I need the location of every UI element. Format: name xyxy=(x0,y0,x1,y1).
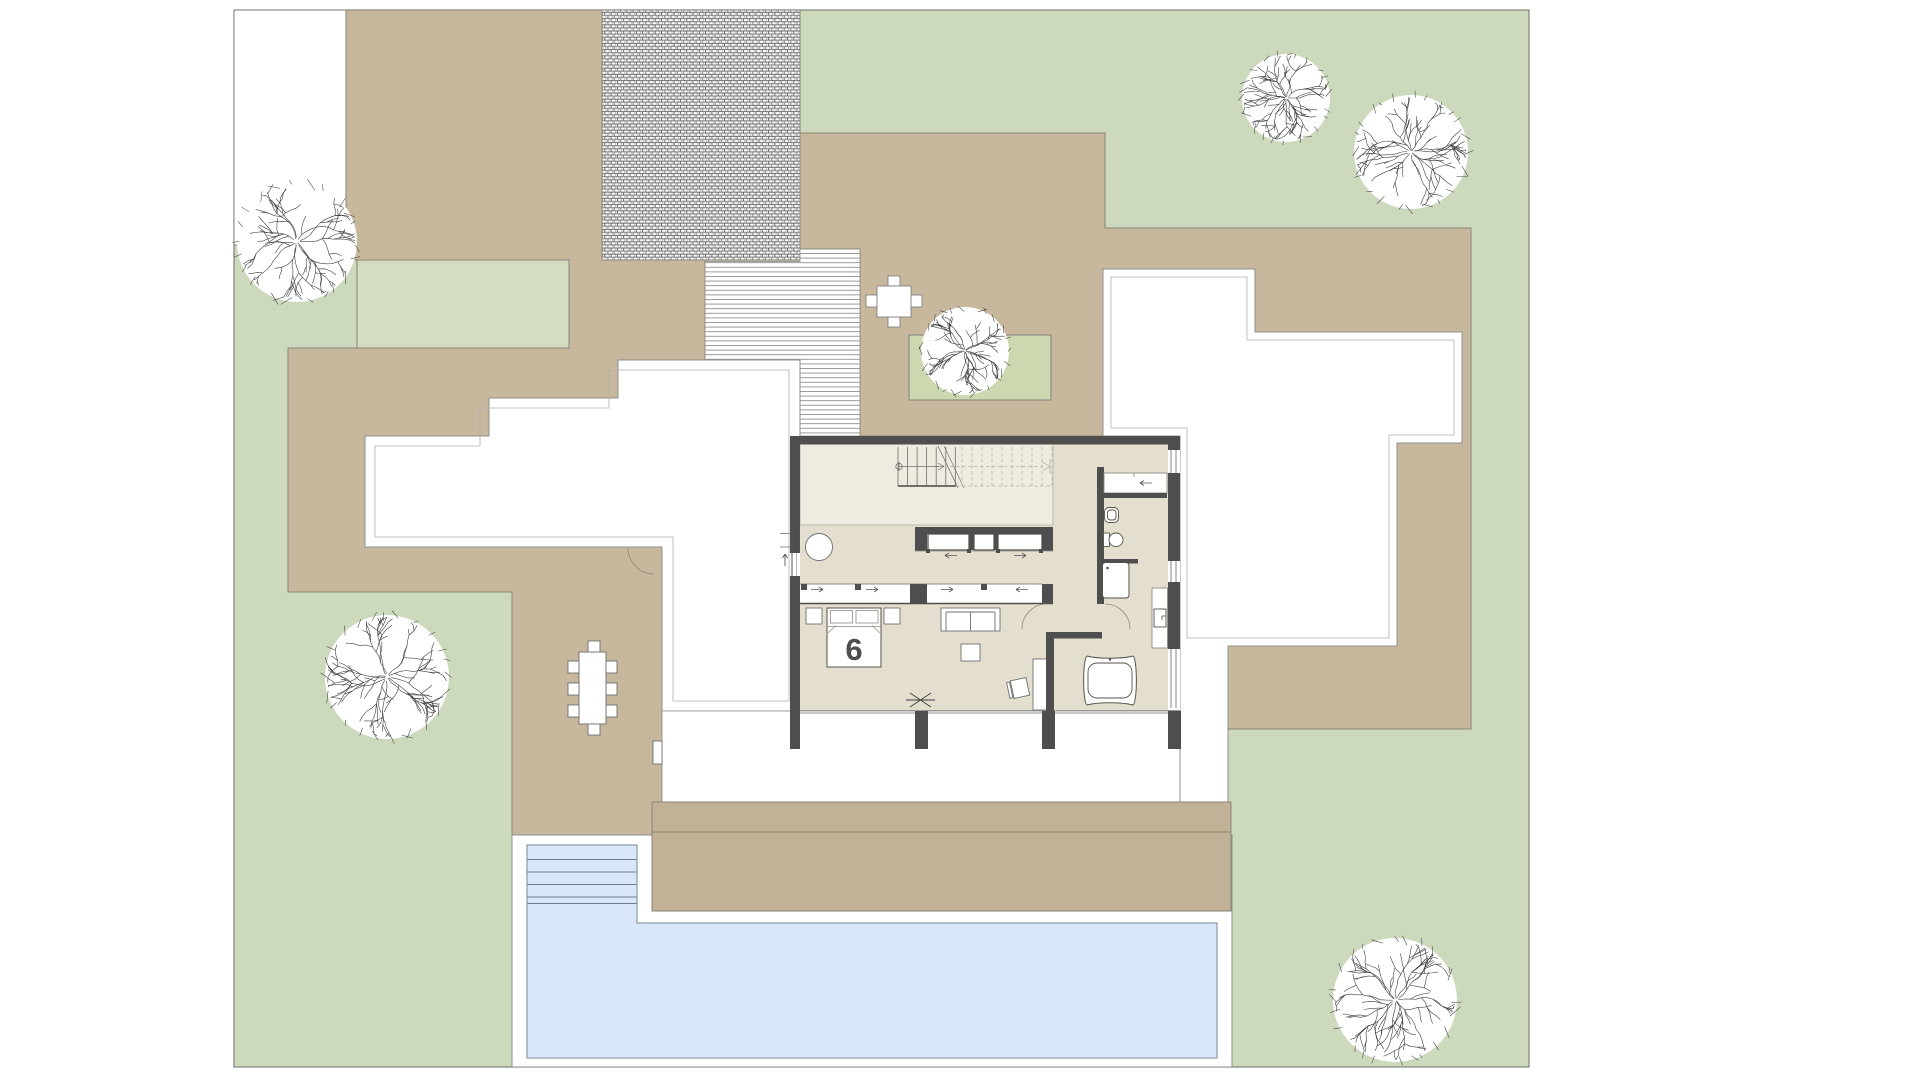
svg-text:6: 6 xyxy=(845,632,862,667)
